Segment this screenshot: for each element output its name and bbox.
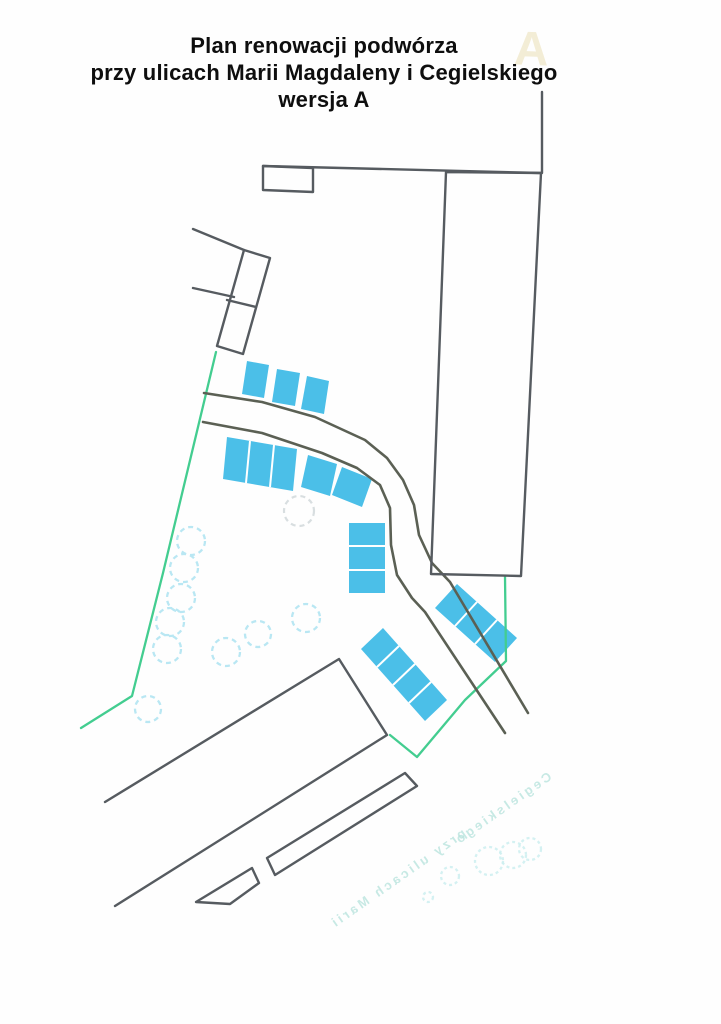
building-narrow-strip <box>267 773 417 875</box>
tree-circle <box>177 527 205 555</box>
parking-stall <box>332 467 372 507</box>
bleedthrough-circle <box>441 867 459 885</box>
site-plan-svg: przy ulicach MariiCegielskiego <box>0 0 721 1024</box>
parking-block-three <box>223 437 297 491</box>
parking-stall <box>301 376 329 414</box>
tree-circle <box>245 621 271 647</box>
scanned-plan-page: A Plan renowacji podwórza przy ulicach M… <box>0 0 721 1024</box>
parking-stall <box>272 369 300 406</box>
tree-circle <box>135 696 161 722</box>
building-small-trapezoid <box>196 868 259 904</box>
building-right-long <box>431 172 541 576</box>
tree-circle <box>292 604 320 632</box>
tree-circle <box>212 638 240 666</box>
tree-circle <box>170 554 198 582</box>
bleedthrough-text-upper: Cegielskiego <box>451 769 555 848</box>
bleedthrough-circle <box>519 838 541 860</box>
building-tilted-divider <box>227 300 256 307</box>
parking-stall <box>242 361 269 398</box>
wall-upper-left <box>193 229 244 250</box>
building-small-annex <box>263 166 313 192</box>
wall-left-lower <box>193 288 234 297</box>
bleedthrough-circle <box>500 842 526 868</box>
bleedthrough-text-lower: przy ulicach Marii <box>326 825 468 931</box>
tree-circle <box>156 608 184 636</box>
parking-stall <box>301 455 337 496</box>
bleedthrough-circle <box>423 892 433 902</box>
tree-circle-faint <box>284 496 314 526</box>
building-bottom-large <box>105 659 387 906</box>
tree-circle <box>153 635 181 663</box>
green-boundary-left <box>81 352 216 728</box>
parking-block-vertical <box>349 523 385 593</box>
building-tilted-left <box>217 250 270 354</box>
bleedthrough-circle <box>475 847 503 875</box>
